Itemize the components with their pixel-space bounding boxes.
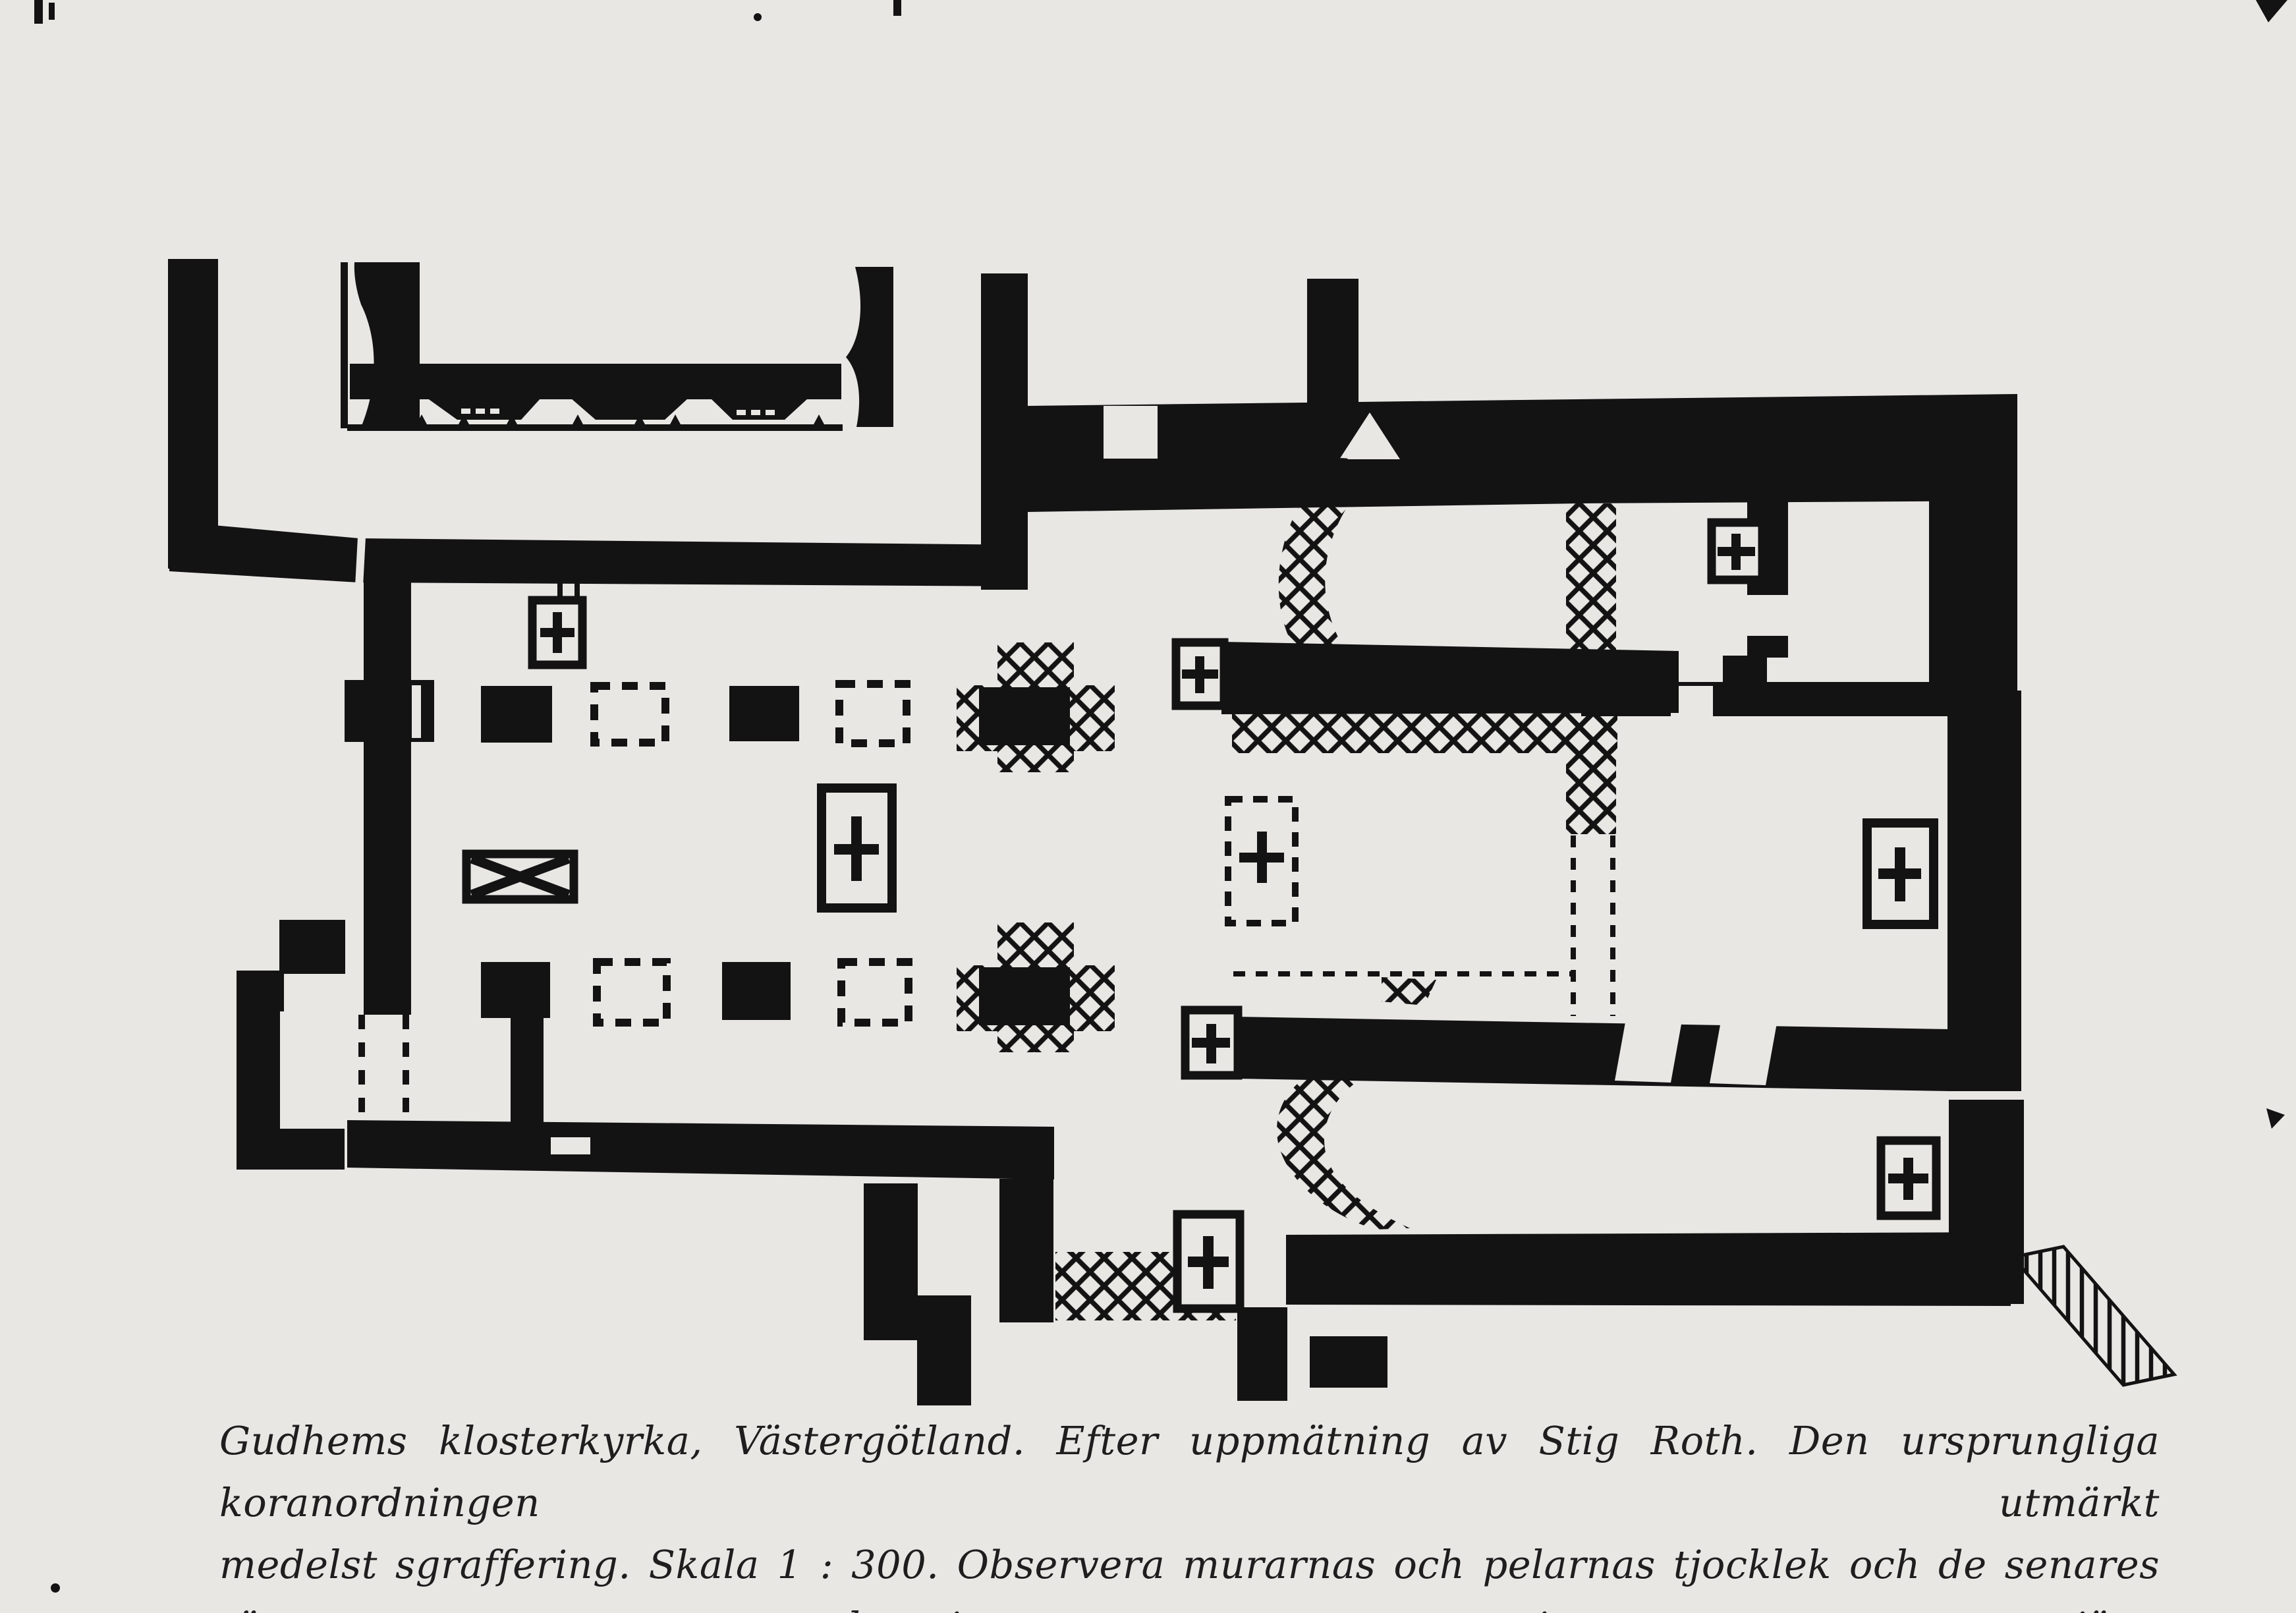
- vault-severies: [427, 398, 808, 420]
- sgraffito-original-choir: [957, 458, 1617, 1320]
- crossing-pier-core-south: [979, 967, 1070, 1025]
- south-portal-gap: [551, 1137, 590, 1154]
- south-chapel-west-wall: [999, 1179, 1053, 1322]
- dashed-altar-cross: [1239, 832, 1284, 883]
- north-wall-bar-west: [981, 273, 1028, 590]
- caption-line-1: Gudhems klosterkyrka, Västergötland. Eft…: [219, 1410, 2160, 1534]
- apse-arc-south: [1277, 1073, 1410, 1230]
- slab-nave-north: [532, 581, 582, 665]
- south-chapel-lower-walls: [1237, 1307, 1387, 1401]
- south-wall-stub: [511, 1015, 544, 1125]
- original-wall-east-strip: [1566, 503, 1616, 834]
- north-band: [1027, 394, 2017, 512]
- figure-caption: Gudhems klosterkyrka, Västergötland. Eft…: [219, 1410, 2160, 1613]
- caption-line-2: medelst sgraffering. Skala 1 : 300. Obse…: [219, 1534, 2160, 1613]
- choir-east-wall: [1947, 691, 2024, 1304]
- nave-north-wall: [169, 521, 1028, 586]
- slab-north-screen: [1176, 642, 1224, 706]
- north-wall-bar-east: [1307, 279, 1358, 405]
- nave-south-wall: [347, 1120, 1054, 1189]
- west-porch: [237, 971, 345, 1170]
- nave-west-wall: [279, 582, 434, 1015]
- sgraffito-fragment: [1382, 977, 1436, 1005]
- cross-marked-slabs: [466, 523, 1936, 1309]
- stair-hatch-strip: [2013, 1247, 2174, 1385]
- north-door-gap: [1104, 406, 1158, 459]
- southwest-annex: [864, 1183, 971, 1405]
- south-outer-wall: [1286, 1232, 2011, 1306]
- original-wall-north-band: [1232, 704, 1617, 753]
- walls: [168, 259, 2024, 1405]
- slab-southeast-chapel: [1881, 1141, 1936, 1216]
- slab-nave-center: [822, 788, 892, 908]
- crossing-pier-core-north: [979, 687, 1070, 745]
- slab-x-marked: [466, 854, 574, 899]
- northwest-room: [341, 262, 893, 431]
- floor-plan: [0, 0, 2296, 1613]
- slab-sacristy: [1712, 523, 1762, 580]
- slab-south-chapel: [1177, 1214, 1240, 1309]
- book-page: Gudhems klosterkyrka, Västergötland. Eft…: [0, 0, 2296, 1613]
- slab-south-screen: [1185, 1010, 1238, 1075]
- slab-choir-east: [1867, 823, 1934, 924]
- edge-arrow-mark: [2266, 1108, 2285, 1129]
- dashed-west-portal: [362, 1015, 406, 1120]
